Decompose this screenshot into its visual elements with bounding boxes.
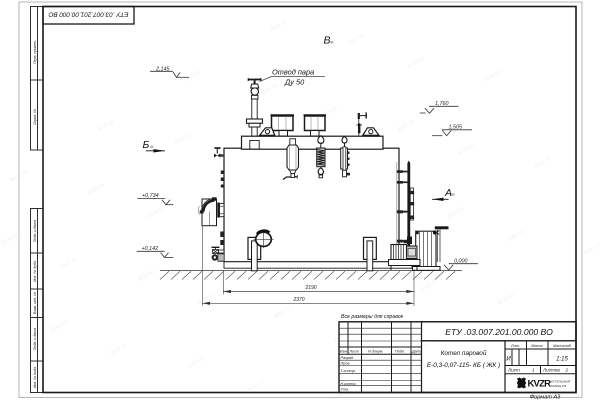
svg-text:2: 2 (565, 368, 569, 373)
svg-text:Подп. и дата: Подп. и дата (33, 328, 37, 351)
svg-text:ЕТУ .03.007.201.00.000 ВО: ЕТУ .03.007.201.00.000 ВО (445, 327, 553, 337)
svg-text:1: 1 (532, 368, 535, 373)
svg-text:0,000: 0,000 (454, 258, 468, 264)
svg-text:Т.контр.: Т.контр. (341, 369, 356, 373)
svg-text:Инв. № подл.: Инв. № подл. (33, 366, 37, 388)
svg-text:2190: 2190 (304, 285, 316, 291)
svg-text:Перв. примен.: Перв. примен. (33, 40, 37, 64)
svg-text:Лист: Лист (349, 350, 360, 354)
svg-text:2,145: 2,145 (155, 66, 170, 72)
svg-text:ЗАВОД РФ: ЗАВОД РФ (551, 384, 567, 388)
svg-text:Е-0,3-0,07-115- КБ ( ЖК ): Е-0,3-0,07-115- КБ ( ЖК ) (427, 362, 500, 369)
svg-text:В: В (324, 35, 331, 47)
svg-text:Изм: Изм (340, 350, 347, 354)
svg-text:Разраб.: Разраб. (341, 356, 355, 360)
svg-text:Лист: Лист (507, 368, 520, 373)
svg-text:Ду 50: Ду 50 (284, 78, 305, 87)
svg-text:Листов: Листов (542, 368, 560, 373)
svg-text:Дата: Дата (411, 350, 422, 354)
svg-text:ЕТУ .03.007.201.00.000 ВО: ЕТУ .03.007.201.00.000 ВО (48, 11, 128, 18)
svg-text:1,760: 1,760 (435, 101, 449, 107)
svg-text:Б: Б (143, 139, 150, 151)
svg-text:Масса: Масса (531, 344, 542, 348)
svg-text:N докум.: N докум. (368, 350, 383, 354)
svg-text:1:15: 1:15 (556, 357, 568, 363)
svg-text:Инв. № дубл.: Инв. № дубл. (33, 260, 37, 282)
svg-text:Все размеры для справок: Все размеры для справок (341, 314, 404, 320)
svg-text:А: А (444, 187, 452, 199)
svg-text:И: И (506, 357, 511, 363)
svg-text:Пров.: Пров. (341, 362, 351, 366)
svg-text:Утв.: Утв. (341, 387, 350, 391)
svg-text:Подп.: Подп. (395, 350, 405, 354)
svg-text:Взам. инв. №: Взам. инв. № (33, 292, 37, 314)
svg-text:Формат А3: Формат А3 (530, 395, 561, 400)
svg-text:KVZR: KVZR (528, 379, 552, 390)
svg-text:Отвод пара: Отвод пара (272, 68, 314, 77)
svg-text:Лит.: Лит. (510, 344, 520, 348)
svg-text:Котел паровой: Котел паровой (441, 349, 487, 357)
svg-text:+0,734: +0,734 (142, 193, 159, 199)
svg-text:Справ. №: Справ. № (33, 109, 37, 125)
svg-text:Н.контр.: Н.контр. (341, 382, 357, 386)
svg-text:Масштаб: Масштаб (553, 344, 572, 348)
svg-text:1,505: 1,505 (449, 124, 463, 130)
svg-text:Подп. и дата: Подп. и дата (33, 220, 37, 243)
svg-text:2370: 2370 (292, 297, 304, 303)
svg-text:+0,142: +0,142 (142, 246, 159, 252)
